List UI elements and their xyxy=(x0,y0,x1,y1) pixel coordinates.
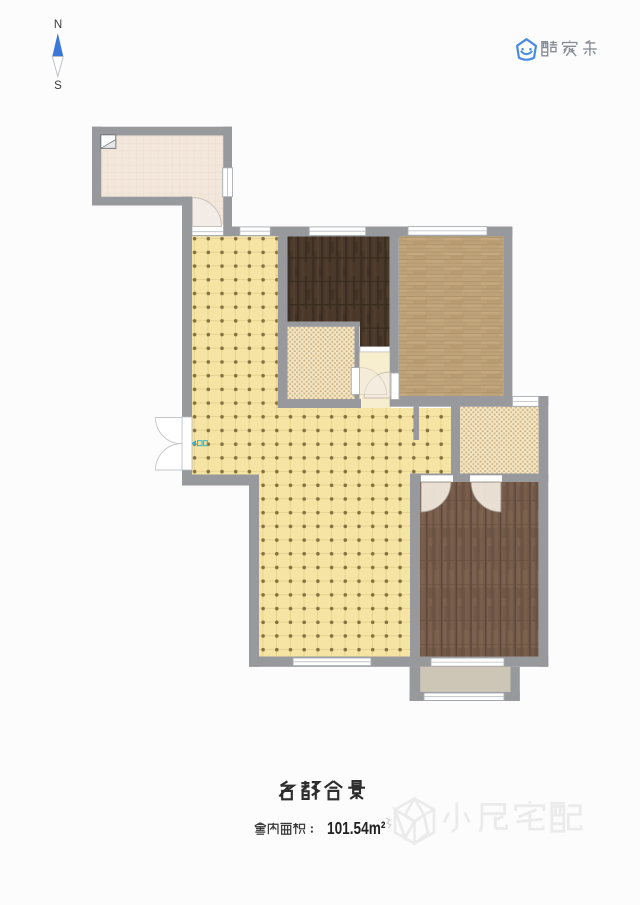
svg-text:N: N xyxy=(54,19,62,31)
svg-text:101.54m²: 101.54m² xyxy=(327,820,385,839)
svg-text:S: S xyxy=(54,80,62,92)
